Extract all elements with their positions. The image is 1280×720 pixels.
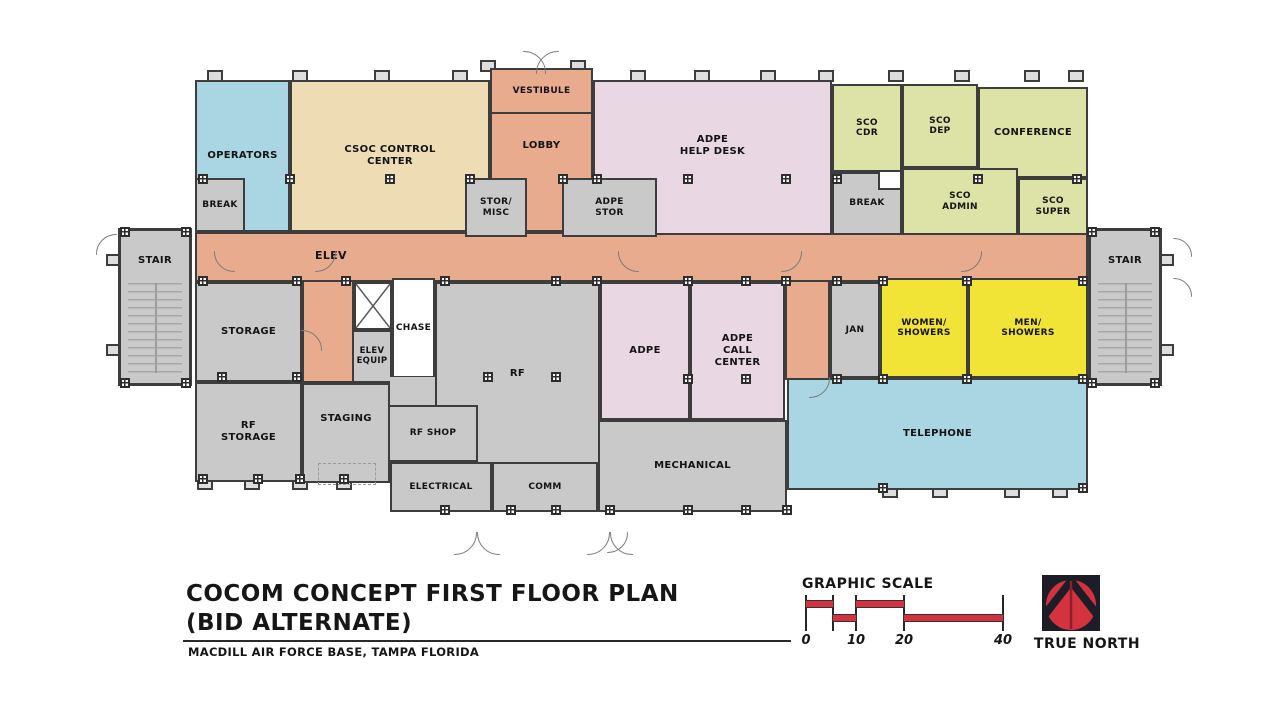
column-marker [198,276,208,286]
column-marker [292,372,302,382]
column-marker [1078,483,1088,493]
pilaster [954,70,970,82]
scale-bar [805,600,834,608]
column-marker [878,276,888,286]
room-rf-shop: RF SHOP [388,405,478,462]
plan-subtitle: (BID ALTERNATE) [186,610,412,637]
room-men-showers: MEN/ SHOWERS [968,278,1088,378]
scale-bar [903,614,1004,622]
scale-bar [855,600,905,608]
room-sco-dep: SCO DEP [902,84,978,168]
room-sco-cdr: SCO CDR [832,84,902,172]
true-north-label: TRUE NORTH [1028,636,1146,652]
column-marker [832,276,842,286]
column-marker [962,374,972,384]
scale-bar [832,614,857,622]
plan-title: COCOM CONCEPT FIRST FLOOR PLAN [186,581,679,608]
room-women-showers: WOMEN/ SHOWERS [880,278,968,378]
column-marker [558,174,568,184]
column-marker [483,372,493,382]
column-marker [741,505,751,515]
column-marker [1150,227,1160,237]
room-csoc-control-center: CSOC CONTROL CENTER [290,80,490,232]
door-swing [566,511,610,555]
room-storage: STORAGE [195,282,302,382]
column-marker [1072,174,1082,184]
column-marker [217,372,227,382]
column-marker [120,378,130,388]
room-sco-super: SCO SUPER [1018,178,1088,235]
title-rule [183,640,791,642]
plan-location: MACDILL AIR FORCE BASE, TAMPA FLORIDA [188,645,479,659]
column-marker [878,374,888,384]
column-marker [683,505,693,515]
scale-number: 40 [994,633,1012,648]
column-marker [339,474,349,484]
column-marker [683,174,693,184]
column-marker [1150,378,1160,388]
column-marker [292,276,302,286]
column-marker [741,276,751,286]
room-rf-storage: RF STORAGE [195,382,302,482]
room-sco-admin: SCO ADMIN [902,168,1018,235]
room-stor-misc: STOR/ MISC [465,178,527,237]
column-marker [962,276,972,286]
column-marker [285,174,295,184]
door-swing [477,511,521,555]
room-break-west: BREAK [195,178,245,232]
room-adpe: ADPE [600,282,690,420]
column-marker [1087,227,1097,237]
pilaster [1068,70,1084,82]
column-marker [440,276,450,286]
column-marker [198,174,208,184]
scale-number: 0 [801,633,810,648]
pilaster [1024,70,1040,82]
graphic-scale: GRAPHIC SCALE 0 10 20 40 [800,576,1032,656]
column-marker [341,276,351,286]
scale-number: 20 [895,633,913,648]
column-marker [683,374,693,384]
room-stair-east: STAIR [1088,228,1162,386]
column-marker [878,483,888,493]
column-marker [295,474,305,484]
column-marker [551,505,561,515]
room-adpe-call-center: ADPE CALL CENTER [690,282,785,420]
room-jan: JAN [830,282,880,378]
column-marker [506,505,516,515]
elevator-shaft-x-icon [356,284,390,328]
room-conference: CONFERENCE [978,87,1088,178]
column-marker [1078,276,1088,286]
pilaster [888,70,904,82]
stair-treads [1098,283,1152,373]
scale-tick [1002,595,1004,631]
room-chase: CHASE [392,278,435,378]
stair-treads [128,283,182,373]
column-marker [832,374,842,384]
column-marker [741,374,751,384]
column-marker [465,174,475,184]
column-marker [782,505,792,515]
column-marker [1087,378,1097,388]
column-marker [198,474,208,484]
column-marker [781,174,791,184]
column-marker [973,174,983,184]
column-marker [683,276,693,286]
column-marker [605,505,615,515]
room-mechanical: MECHANICAL [598,420,787,512]
room-vestibule: VESTIBULE [490,68,593,114]
column-marker [781,276,791,286]
closet [878,170,902,190]
column-marker [120,227,130,237]
corridor-branch [785,280,830,380]
room-adpe-stor: ADPE STOR [562,178,657,237]
room-elev-equip: ELEV EQUIP [352,330,392,383]
room-telephone: TELEPHONE [787,378,1088,490]
column-marker [440,505,450,515]
column-marker [832,174,842,184]
true-north: TRUE NORTH [1042,575,1132,655]
column-marker [592,174,602,184]
door-swing [433,511,477,555]
column-marker [181,378,191,388]
room-stair-west: STAIR [118,228,192,386]
elevator-shaft [354,282,392,330]
true-north-icon [1042,575,1100,631]
column-marker [592,276,602,286]
graphic-scale-title: GRAPHIC SCALE [802,576,934,592]
column-marker [253,474,263,484]
staging-hall-filler [390,377,435,407]
scale-number: 10 [847,633,865,648]
column-marker [181,227,191,237]
column-marker [385,174,395,184]
column-marker [551,372,561,382]
column-marker [551,276,561,286]
